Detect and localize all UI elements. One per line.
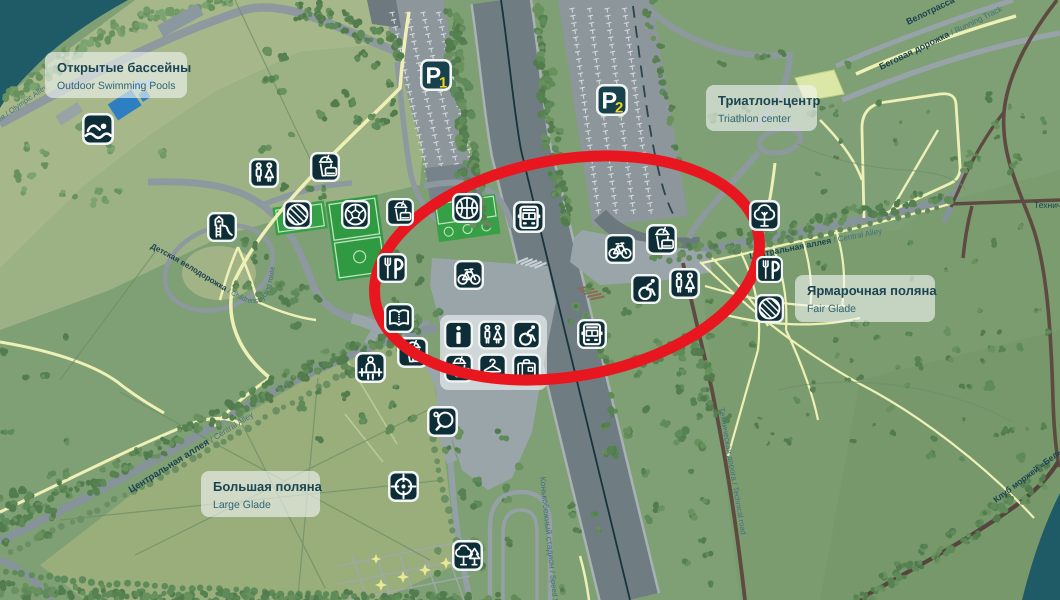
- svg-text:Triathlon center: Triathlon center: [718, 113, 791, 125]
- svg-text:Триатлон-центр: Триатлон-центр: [718, 93, 820, 108]
- svg-text:Большая поляна: Большая поляна: [213, 479, 323, 494]
- svg-text:Fair Glade: Fair Glade: [807, 303, 856, 315]
- svg-text:Техничес: Техничес: [1034, 200, 1060, 210]
- svg-text:Ярмарочная поляна: Ярмарочная поляна: [807, 283, 937, 298]
- svg-text:Открытые бассейны: Открытые бассейны: [57, 60, 191, 75]
- svg-text:2: 2: [615, 98, 624, 115]
- svg-text:1: 1: [439, 73, 448, 90]
- svg-text:Outdoor Swimming Pools: Outdoor Swimming Pools: [57, 80, 175, 92]
- svg-text:Large Glade: Large Glade: [213, 499, 271, 511]
